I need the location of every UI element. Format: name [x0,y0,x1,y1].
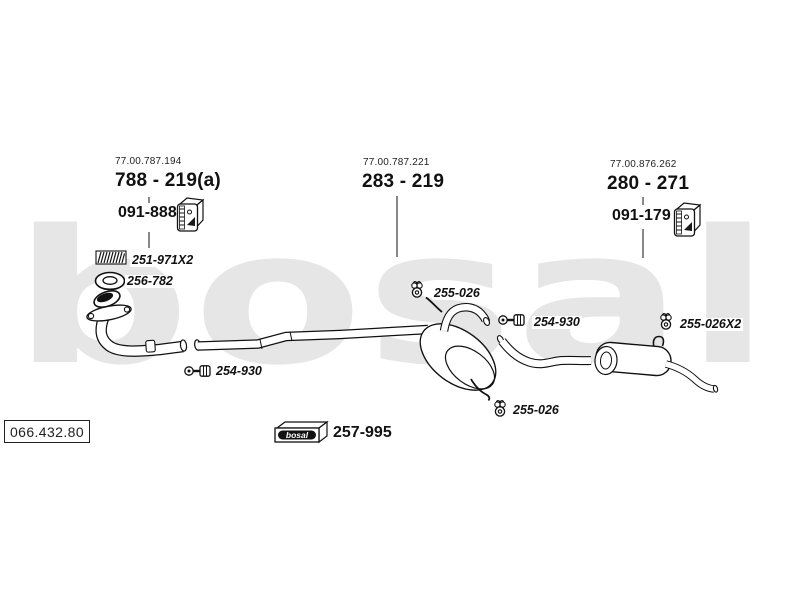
exhaust-parts-diagram: bosal [0,0,800,600]
fitting-label-clamp-front: 254-930 [214,365,264,378]
clamp-icon-front [185,366,210,376]
centre-pipe [194,330,428,351]
flange-ring-icon [96,273,125,290]
rear-muffler [594,337,672,377]
assembly-ref-rear: 77.00.876.262 [610,160,677,170]
fitting-label-flange-ring: 256-782 [125,275,175,288]
exhaust-line-art [0,0,800,600]
rear-muffler-hook [653,337,663,348]
hanger-icon-mid-bottom [495,401,505,416]
rubber-mount-icon-rear [675,203,701,236]
gasket-strip-icon [96,251,126,264]
fitting-kit-number: 257-995 [333,425,392,441]
mount-part-rear: 091-179 [612,208,671,224]
fitting-label-clamp-mid: 254-930 [532,316,582,329]
assembly-part-centre: 283 - 219 [362,172,444,191]
assembly-ref-centre: 77.00.787.221 [363,158,430,168]
assembly-part-rear: 280 - 271 [607,174,689,193]
diagram-ref: 066.432.80 [10,425,84,439]
bosal-logo-box: bosal [272,419,330,449]
assembly-ref-front: 77.00.787.194 [115,157,182,167]
rear-connecting-pipe [496,335,591,364]
fitting-label-hanger-mid-bottom: 255-026 [511,404,561,417]
diagram-ref-box: 066.432.80 [4,420,90,443]
centre-muffler [408,310,508,403]
hanger-icon-rear [661,314,671,329]
front-pipe [86,288,188,353]
fitting-label-hanger-mid-top: 255-026 [432,287,482,300]
fitting-label-gasket-strip: 251-971X2 [130,254,195,267]
clamp-icon-mid [499,315,524,325]
hanger-icon-mid-top [412,282,422,297]
fitting-label-hanger-rear: 255-026X2 [678,318,743,331]
assembly-part-front: 788 - 219(a) [115,171,221,190]
mount-part-front: 091-888 [118,205,177,221]
tailpipe [666,364,718,393]
rubber-mount-icon-front [178,198,204,231]
bosal-logo-text: bosal [286,430,309,440]
